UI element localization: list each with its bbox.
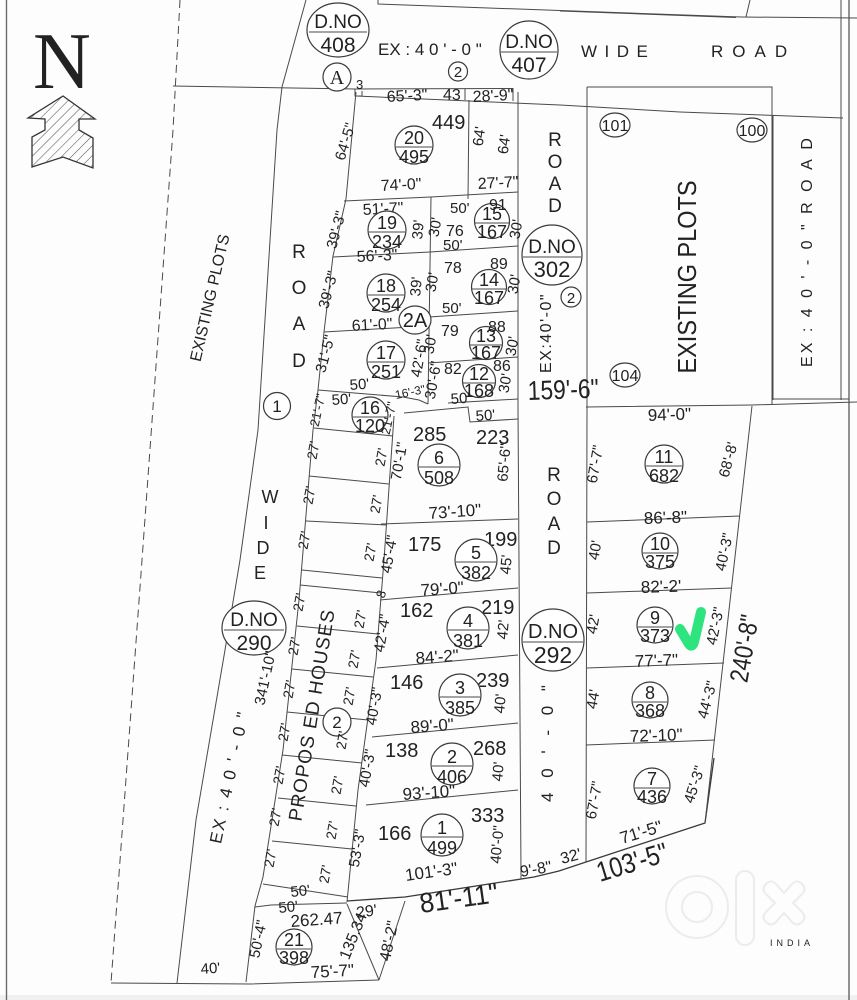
svg-text:N: N (33, 18, 91, 106)
svg-text:30': 30' (495, 372, 515, 394)
svg-text:5: 5 (471, 543, 481, 563)
svg-text:61'-0": 61'-0" (351, 316, 393, 335)
svg-text:27': 27' (300, 485, 319, 506)
svg-text:27': 27' (351, 609, 370, 630)
svg-text:219: 219 (481, 597, 514, 619)
svg-text:9: 9 (650, 608, 660, 628)
svg-text:508: 508 (424, 468, 454, 488)
svg-text:75'-7": 75'-7" (310, 961, 354, 982)
svg-text:285: 285 (413, 424, 446, 446)
svg-text:27': 27' (361, 542, 380, 563)
svg-text:50': 50' (450, 390, 471, 408)
svg-text:682: 682 (649, 466, 679, 486)
svg-text:4: 4 (463, 611, 473, 631)
svg-text:D.NO: D.NO (314, 12, 362, 33)
svg-text:O: O (548, 152, 563, 173)
svg-text:64': 64' (495, 133, 515, 155)
svg-text:239: 239 (476, 670, 509, 692)
svg-text:268: 268 (473, 738, 506, 760)
svg-text:104: 104 (612, 368, 639, 385)
svg-text:50': 50' (331, 391, 352, 409)
svg-text:166: 166 (378, 823, 411, 845)
svg-text:30': 30' (422, 271, 442, 293)
svg-text:495: 495 (399, 147, 429, 167)
svg-text:27': 27' (340, 686, 359, 707)
svg-text:18: 18 (376, 276, 396, 296)
svg-text:94'-0": 94'-0" (647, 404, 691, 425)
svg-text:27': 27' (328, 775, 347, 796)
svg-text:27': 27' (372, 447, 391, 468)
svg-text:65'-3": 65'-3" (386, 87, 428, 106)
svg-text:254: 254 (371, 295, 401, 315)
svg-text:40': 40' (200, 960, 221, 978)
svg-text:D.NO: D.NO (528, 621, 578, 643)
svg-text:302: 302 (534, 257, 571, 282)
svg-text:373: 373 (640, 626, 670, 646)
svg-text:2: 2 (447, 747, 457, 767)
svg-text:101: 101 (602, 118, 629, 135)
svg-text:2A: 2A (403, 310, 428, 332)
svg-text:D.NO: D.NO (505, 32, 553, 53)
svg-text:73'-10": 73'-10" (428, 500, 482, 523)
svg-text:19: 19 (377, 213, 397, 233)
svg-text:91: 91 (489, 197, 507, 214)
svg-text:INDIA: INDIA (770, 938, 814, 948)
svg-text:64': 64' (470, 125, 490, 147)
svg-text:79'-0": 79'-0" (420, 578, 465, 600)
svg-text:368: 368 (635, 701, 665, 721)
svg-text:86'-8": 86'-8" (643, 507, 687, 528)
svg-text:O: O (292, 278, 307, 299)
svg-text:30': 30' (502, 335, 522, 357)
svg-text:D: D (257, 538, 270, 558)
svg-text:167: 167 (474, 288, 504, 308)
svg-text:82'-2': 82'-2' (640, 577, 681, 597)
svg-text:499: 499 (427, 838, 457, 858)
svg-text:86: 86 (493, 358, 511, 375)
svg-text:D: D (548, 196, 562, 217)
svg-text:21: 21 (284, 930, 304, 950)
svg-text:I: I (263, 513, 268, 533)
svg-text:A: A (293, 314, 306, 335)
svg-text:84'-2": 84'-2" (415, 646, 460, 668)
svg-text:146: 146 (390, 672, 423, 694)
svg-text:E: E (254, 563, 266, 583)
svg-text:72'-10": 72'-10" (629, 725, 682, 746)
svg-text:W: W (262, 487, 279, 507)
svg-text:50': 50' (475, 407, 496, 425)
svg-text:40'-0": 40'-0" (487, 825, 507, 865)
svg-text:EX : 4 0 ' - 0 ": EX : 4 0 ' - 0 " (378, 40, 482, 59)
svg-text:39': 39' (409, 219, 428, 240)
svg-text:2: 2 (454, 64, 462, 81)
svg-text:R: R (292, 242, 306, 263)
svg-text:78: 78 (444, 260, 462, 277)
svg-text:333: 333 (471, 805, 504, 827)
svg-text:40': 40' (585, 539, 605, 561)
svg-text:EXISTING PLOTS: EXISTING PLOTS (672, 181, 702, 374)
svg-text:162: 162 (400, 600, 433, 622)
svg-text:42': 42' (583, 613, 603, 635)
svg-text:382: 382 (461, 563, 491, 583)
svg-text:100: 100 (739, 123, 766, 140)
svg-text:WIDE: WIDE (581, 42, 655, 61)
svg-text:56'-3": 56'-3" (356, 247, 398, 266)
svg-text:27': 27' (266, 807, 285, 828)
svg-text:42': 42' (494, 619, 513, 640)
svg-text:50': 50' (443, 237, 463, 254)
svg-text:50': 50' (450, 200, 470, 217)
svg-text:167: 167 (477, 222, 507, 242)
svg-text:50': 50' (349, 376, 370, 394)
svg-text:6: 6 (434, 448, 444, 468)
svg-text:20: 20 (404, 128, 424, 148)
svg-text:27': 27' (295, 530, 314, 551)
svg-text:375: 375 (645, 552, 675, 572)
svg-text:82: 82 (444, 361, 462, 378)
svg-text:93'-10": 93'-10" (402, 781, 456, 804)
svg-text:436: 436 (637, 787, 667, 807)
svg-text:27': 27' (261, 848, 280, 869)
svg-text:8: 8 (645, 683, 655, 703)
svg-text:27': 27' (333, 730, 352, 751)
svg-text:EX : 4 0 ' - 0 " R O A D: EX : 4 0 ' - 0 " R O A D (799, 135, 816, 367)
svg-text:50': 50' (442, 300, 462, 317)
svg-text:262.47: 262.47 (290, 908, 343, 931)
svg-text:30': 30' (504, 273, 524, 295)
svg-text:407: 407 (511, 54, 546, 77)
svg-text:27': 27' (285, 636, 304, 657)
svg-text:89'-0": 89'-0" (410, 715, 455, 737)
svg-text:16: 16 (360, 398, 380, 418)
svg-text:27': 27' (367, 494, 386, 515)
svg-text:175: 175 (408, 534, 441, 556)
svg-text:27': 27' (270, 765, 289, 786)
svg-text:27'-7": 27'-7" (477, 174, 519, 193)
svg-text:27': 27' (345, 649, 364, 670)
svg-text:28'-9": 28'-9" (472, 87, 514, 106)
svg-text:D.NO: D.NO (528, 237, 576, 258)
svg-text:44': 44' (583, 688, 603, 710)
svg-text:251: 251 (371, 362, 401, 382)
svg-text:27': 27' (304, 440, 323, 461)
svg-text:27': 27' (275, 722, 294, 743)
svg-text:40': 40' (489, 761, 508, 782)
svg-text:2: 2 (332, 713, 341, 732)
svg-text:O: O (547, 489, 562, 510)
svg-text:30': 30' (420, 333, 440, 355)
svg-text:40': 40' (491, 693, 510, 714)
svg-text:14: 14 (479, 270, 499, 290)
svg-text:77'-7": 77'-7" (634, 650, 678, 671)
svg-text:1: 1 (272, 397, 281, 416)
svg-text:30': 30' (425, 216, 445, 238)
svg-text:408: 408 (320, 34, 355, 57)
svg-text:398: 398 (279, 948, 309, 968)
svg-text:11: 11 (655, 447, 674, 467)
svg-text:A: A (549, 174, 562, 195)
svg-text:27': 27' (280, 679, 299, 700)
svg-text:65'-6": 65'-6" (494, 443, 514, 483)
svg-text:R: R (548, 130, 562, 151)
svg-text:159'-6": 159'-6" (527, 374, 599, 406)
svg-text:138: 138 (385, 740, 418, 762)
svg-text:27': 27' (290, 592, 309, 613)
svg-text:A: A (548, 514, 561, 535)
svg-text:292: 292 (534, 642, 572, 668)
svg-text:79: 79 (441, 323, 459, 340)
svg-text:D: D (292, 351, 306, 372)
svg-text:R: R (547, 465, 561, 486)
svg-text:88: 88 (488, 319, 506, 336)
svg-text:D: D (547, 538, 561, 559)
svg-text:27': 27' (316, 864, 335, 885)
svg-text:1: 1 (437, 818, 447, 838)
svg-text:7: 7 (647, 769, 657, 789)
svg-text:ROAD: ROAD (711, 42, 796, 61)
svg-text:449: 449 (432, 112, 465, 134)
svg-text:D.NO: D.NO (230, 610, 278, 631)
svg-text:43: 43 (443, 87, 461, 104)
svg-text:17: 17 (376, 343, 396, 363)
svg-text:45': 45' (497, 554, 516, 575)
svg-text:4 0 ' - 0 ": 4 0 ' - 0 " (538, 680, 557, 802)
svg-text:2: 2 (567, 290, 575, 307)
svg-text:A: A (330, 67, 345, 89)
svg-text:EX:40'-0": EX:40'-0" (538, 293, 555, 373)
svg-text:27': 27' (323, 820, 342, 841)
svg-text:3: 3 (455, 678, 465, 698)
svg-text:10: 10 (650, 534, 670, 554)
svg-text:74'-0": 74'-0" (380, 176, 422, 195)
svg-text:3: 3 (356, 77, 363, 92)
